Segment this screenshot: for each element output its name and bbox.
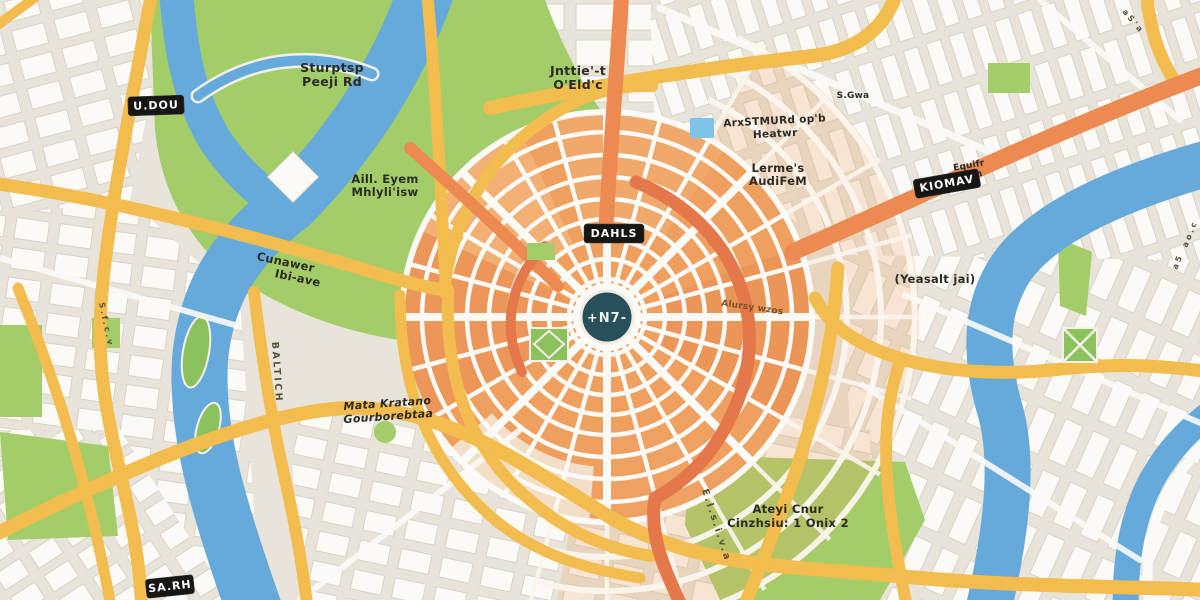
street-label-lermes-2: AudiFeM <box>749 174 807 188</box>
road-shield-top-left-text: U.DOU <box>133 98 179 113</box>
street-label-tr-small: S.Gwa <box>837 91 870 101</box>
street-label-westbridge-1: Aill. Eyem <box>351 172 418 186</box>
road-shield-top-left: U.DOU <box>128 95 185 116</box>
sports-field <box>530 328 568 361</box>
park-round <box>374 421 396 443</box>
city-map-svg: +N7- Sturptsp Peeji Rd Jnttie'-t O'Eld'c… <box>0 0 1200 600</box>
pond <box>690 118 714 138</box>
park-northeast-square <box>988 63 1030 93</box>
street-label-topcenter-2: O'Eld'c <box>553 77 603 92</box>
road-shield-center-text: DAHLS <box>591 227 638 240</box>
road-shield-center: DAHLS <box>584 224 644 243</box>
street-label-southpark-1: Ateyi Cnur <box>752 502 823 516</box>
city-map-canvas[interactable]: +N7- Sturptsp Peeji Rd Jnttie'-t O'Eld'c… <box>0 0 1200 600</box>
park-x-square <box>1063 328 1097 362</box>
park-center-small <box>527 243 555 260</box>
city-center-marker: +N7- <box>573 283 641 351</box>
street-label-westbridge-2: Mhlyli'isw <box>352 185 419 199</box>
street-label-riverside-1: Sturptsp <box>300 60 364 75</box>
street-label-lermes-1: Lerme's <box>751 161 804 175</box>
street-label-riverside-2: Peeji Rd <box>302 74 362 89</box>
street-label-southpark-2: Cinzhsiu: 1 Onix 2 <box>727 516 849 530</box>
center-marker-glyph: +N7- <box>587 311 627 326</box>
street-label-ne-ave-2: Heatwr <box>753 127 799 141</box>
street-label-east-district: (Yeasalt jai) <box>895 272 976 286</box>
street-label-topcenter-1: Jnttie'-t <box>549 63 606 78</box>
